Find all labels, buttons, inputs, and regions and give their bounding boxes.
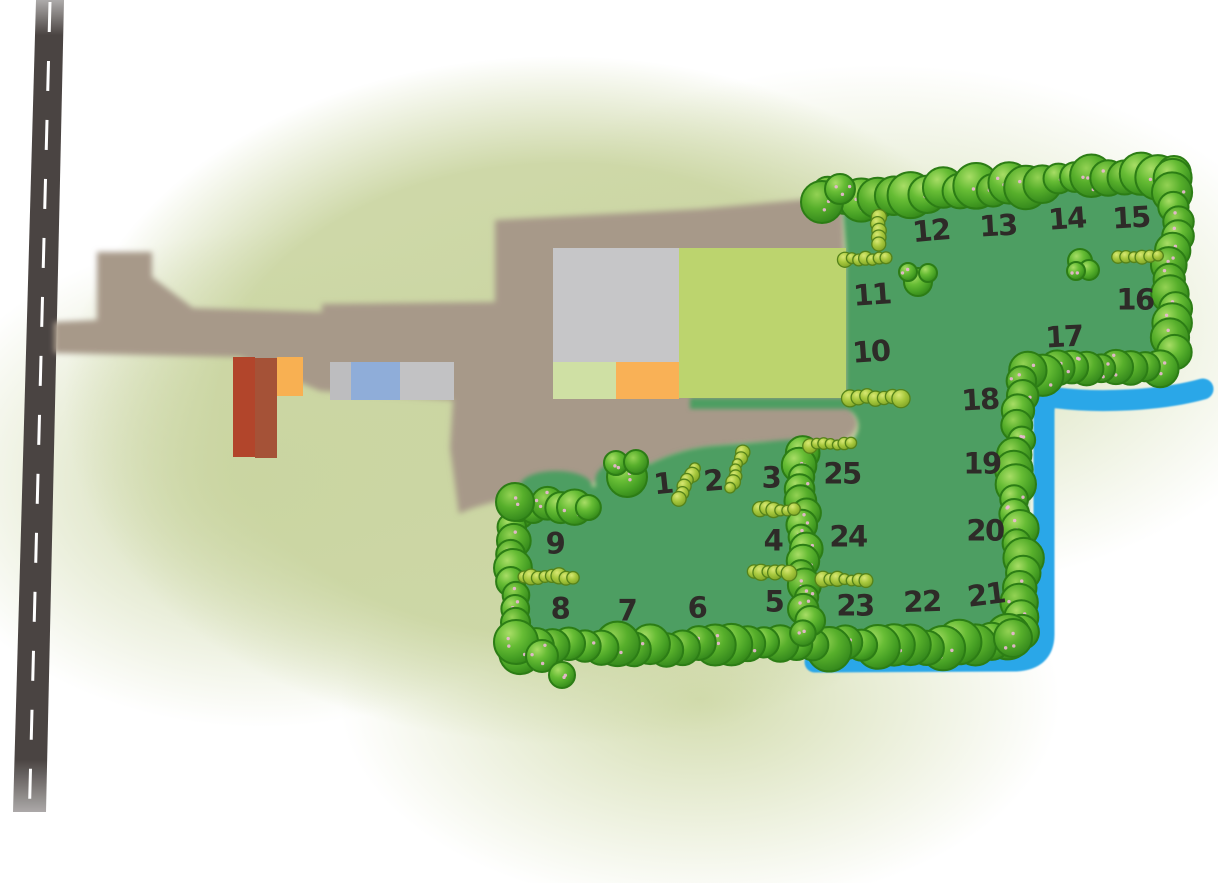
building-orange-shed — [277, 357, 303, 396]
building-red-barn-light — [255, 358, 277, 458]
building-blue-shed — [351, 362, 400, 400]
building-gray-shed-left — [330, 362, 351, 400]
building-gray-shed-right — [400, 362, 454, 400]
building-red-barn-dark — [233, 357, 255, 457]
road-surface — [13, 0, 64, 812]
building-orange-annex — [616, 362, 679, 399]
road — [13, 0, 64, 812]
map-canvas — [0, 0, 1218, 883]
building-large-gray-barn — [553, 248, 679, 363]
building-pale-green-annex — [553, 362, 616, 399]
campsite-map: 1234567891011121314151617181920212223242… — [0, 0, 1218, 883]
building-lime-hall — [679, 248, 846, 398]
